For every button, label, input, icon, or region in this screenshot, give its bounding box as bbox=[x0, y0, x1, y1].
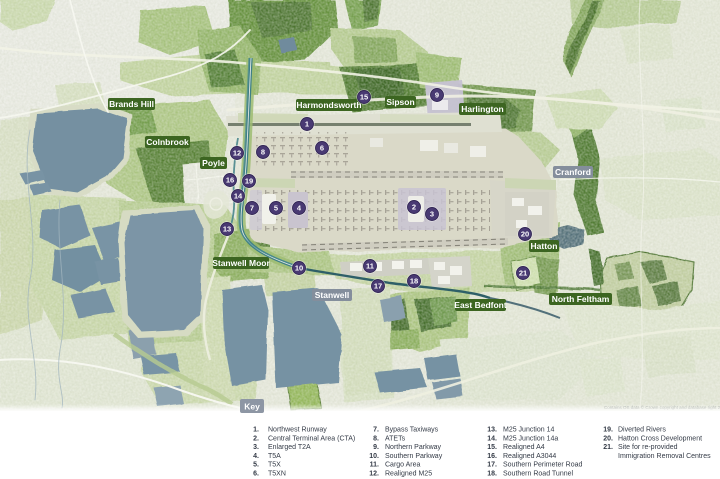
svg-text:14.: 14. bbox=[487, 435, 497, 442]
svg-text:1.: 1. bbox=[253, 427, 259, 434]
svg-text:Brands Hill: Brands Hill bbox=[109, 99, 154, 109]
svg-text:North Feltham: North Feltham bbox=[552, 294, 610, 304]
svg-text:7: 7 bbox=[250, 204, 254, 213]
svg-text:3.: 3. bbox=[253, 444, 259, 451]
svg-text:Stanwell Moor: Stanwell Moor bbox=[212, 258, 270, 268]
svg-text:Southern Parkway: Southern Parkway bbox=[385, 453, 443, 460]
svg-text:Central Terminal Area (CTA): Central Terminal Area (CTA) bbox=[268, 435, 355, 442]
svg-text:Poyle: Poyle bbox=[202, 158, 225, 168]
svg-text:10.: 10. bbox=[369, 453, 379, 460]
svg-text:9: 9 bbox=[435, 91, 439, 100]
svg-text:17.: 17. bbox=[487, 462, 497, 469]
svg-text:ATETs: ATETs bbox=[385, 435, 406, 442]
svg-text:19: 19 bbox=[245, 177, 253, 186]
svg-text:M25 Junction 14a: M25 Junction 14a bbox=[503, 435, 558, 442]
svg-text:Key: Key bbox=[244, 402, 260, 412]
svg-text:8: 8 bbox=[261, 148, 265, 157]
svg-text:11: 11 bbox=[366, 262, 374, 271]
svg-text:East Bedfont: East Bedfont bbox=[454, 300, 507, 310]
svg-text:5: 5 bbox=[274, 204, 278, 213]
svg-text:Stanwell: Stanwell bbox=[315, 290, 349, 300]
svg-text:Enlarged T2A: Enlarged T2A bbox=[268, 444, 311, 451]
svg-text:Hatton Cross Development: Hatton Cross Development bbox=[618, 435, 702, 442]
svg-text:Bypass Taxiways: Bypass Taxiways bbox=[385, 427, 439, 434]
svg-text:7.: 7. bbox=[373, 427, 379, 434]
svg-text:6: 6 bbox=[320, 144, 324, 153]
svg-text:4.: 4. bbox=[253, 453, 259, 460]
svg-text:Colnbrook: Colnbrook bbox=[146, 137, 189, 147]
svg-text:Hatton: Hatton bbox=[531, 241, 558, 251]
svg-text:2.: 2. bbox=[253, 435, 259, 442]
svg-text:13.: 13. bbox=[487, 427, 497, 434]
svg-text:8.: 8. bbox=[373, 435, 379, 442]
svg-text:Northern Parkway: Northern Parkway bbox=[385, 444, 442, 451]
svg-text:1: 1 bbox=[305, 120, 309, 129]
svg-text:12: 12 bbox=[233, 149, 241, 158]
svg-text:Realigned M25: Realigned M25 bbox=[385, 471, 432, 478]
svg-text:19.: 19. bbox=[603, 427, 613, 434]
svg-text:2: 2 bbox=[412, 203, 416, 212]
svg-text:15.: 15. bbox=[487, 444, 497, 451]
svg-text:M25 Junction 14: M25 Junction 14 bbox=[503, 427, 554, 434]
svg-text:18.: 18. bbox=[487, 471, 497, 478]
svg-text:15: 15 bbox=[360, 93, 368, 102]
svg-text:17: 17 bbox=[374, 282, 382, 291]
svg-text:6.: 6. bbox=[253, 471, 259, 478]
svg-text:11.: 11. bbox=[370, 462, 379, 469]
svg-text:21: 21 bbox=[519, 269, 527, 278]
svg-text:Harmondsworth: Harmondsworth bbox=[296, 100, 361, 110]
svg-text:3: 3 bbox=[430, 210, 434, 219]
svg-text:18: 18 bbox=[410, 277, 418, 286]
svg-text:T5A: T5A bbox=[268, 453, 281, 460]
svg-text:20: 20 bbox=[521, 230, 529, 239]
svg-text:9.: 9. bbox=[373, 444, 379, 451]
svg-text:T5XN: T5XN bbox=[268, 471, 286, 478]
svg-text:12.: 12. bbox=[369, 471, 379, 478]
svg-text:Southern Road Tunnel: Southern Road Tunnel bbox=[503, 471, 573, 478]
svg-text:Cranford: Cranford bbox=[555, 167, 591, 177]
svg-text:Northwest Runway: Northwest Runway bbox=[268, 427, 327, 434]
svg-text:Cargo Area: Cargo Area bbox=[385, 462, 421, 469]
svg-text:Sipson: Sipson bbox=[386, 97, 414, 107]
svg-text:T5X: T5X bbox=[268, 462, 281, 469]
svg-text:Diverted Rivers: Diverted Rivers bbox=[618, 427, 666, 434]
svg-text:10: 10 bbox=[295, 264, 303, 273]
svg-text:Southern Perimeter Road: Southern Perimeter Road bbox=[503, 462, 582, 469]
svg-text:13: 13 bbox=[223, 225, 231, 234]
svg-text:16.: 16. bbox=[487, 453, 497, 460]
svg-text:Immigration Removal Centres: Immigration Removal Centres bbox=[618, 453, 711, 460]
svg-text:21.: 21. bbox=[603, 444, 613, 451]
svg-text:5.: 5. bbox=[253, 462, 259, 469]
svg-text:16: 16 bbox=[226, 176, 234, 185]
svg-text:Site for re-provided: Site for re-provided bbox=[618, 444, 678, 451]
svg-text:20.: 20. bbox=[603, 435, 613, 442]
svg-text:Realigned A3044: Realigned A3044 bbox=[503, 453, 556, 460]
svg-text:Harlington: Harlington bbox=[461, 104, 504, 114]
svg-text:Realigned A4: Realigned A4 bbox=[503, 444, 545, 451]
svg-text:14: 14 bbox=[234, 192, 243, 201]
